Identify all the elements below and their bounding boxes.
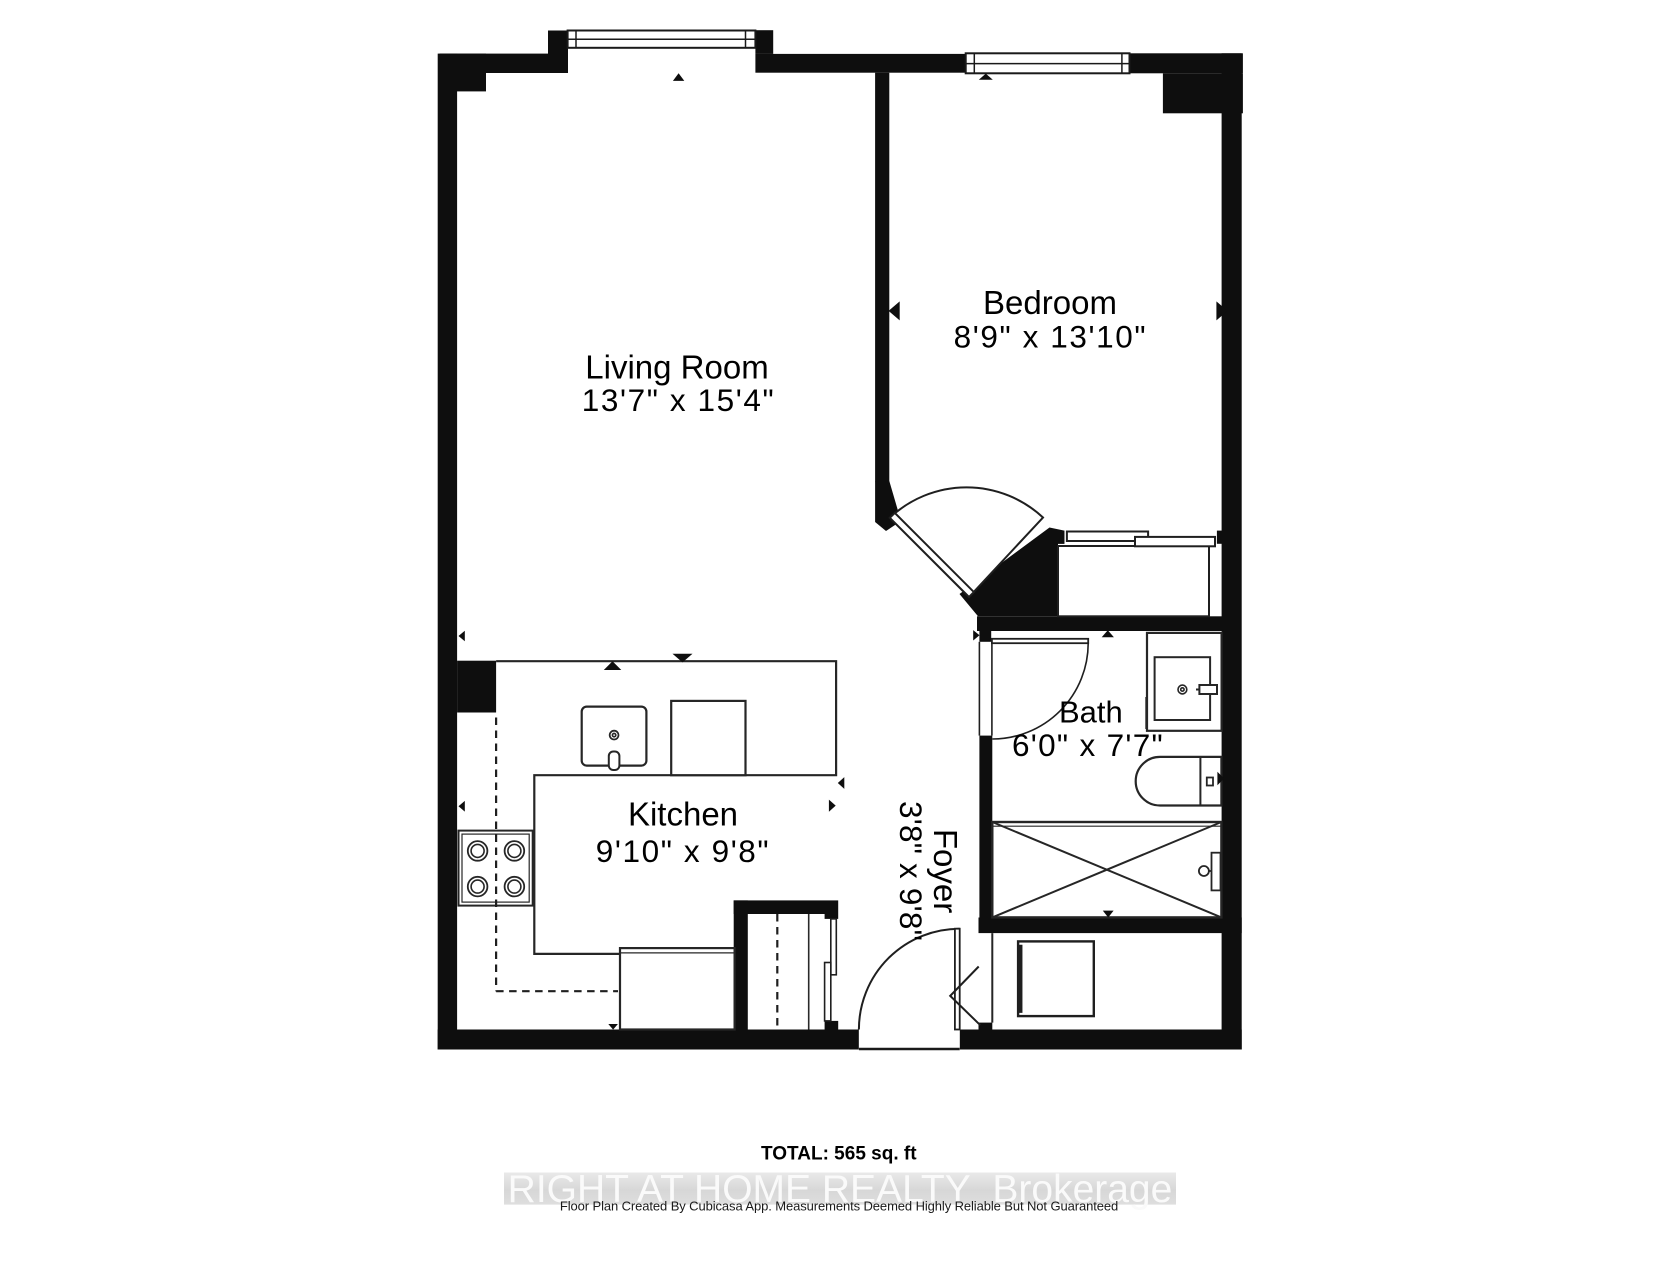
svg-text:Bath: Bath [1059, 694, 1123, 729]
svg-text:Kitchen: Kitchen [628, 796, 738, 833]
svg-text:Living Room: Living Room [585, 349, 768, 386]
svg-text:TOTAL: 565 sq. ft: TOTAL: 565 sq. ft [761, 1144, 917, 1165]
svg-text:Floor Plan Created By Cubicasa: Floor Plan Created By Cubicasa App. Meas… [560, 1199, 1118, 1214]
svg-text:8'9" x 13'10": 8'9" x 13'10" [954, 319, 1148, 355]
svg-text:6'0" x 7'7": 6'0" x 7'7" [1012, 727, 1164, 763]
svg-text:13'7" x 15'4": 13'7" x 15'4" [582, 382, 776, 418]
svg-text:Bedroom: Bedroom [983, 284, 1117, 321]
svg-text:Foyer: Foyer [927, 829, 964, 913]
svg-text:3'8" x 9'8": 3'8" x 9'8" [893, 801, 929, 941]
svg-text:9'10" x 9'8": 9'10" x 9'8" [596, 833, 770, 869]
